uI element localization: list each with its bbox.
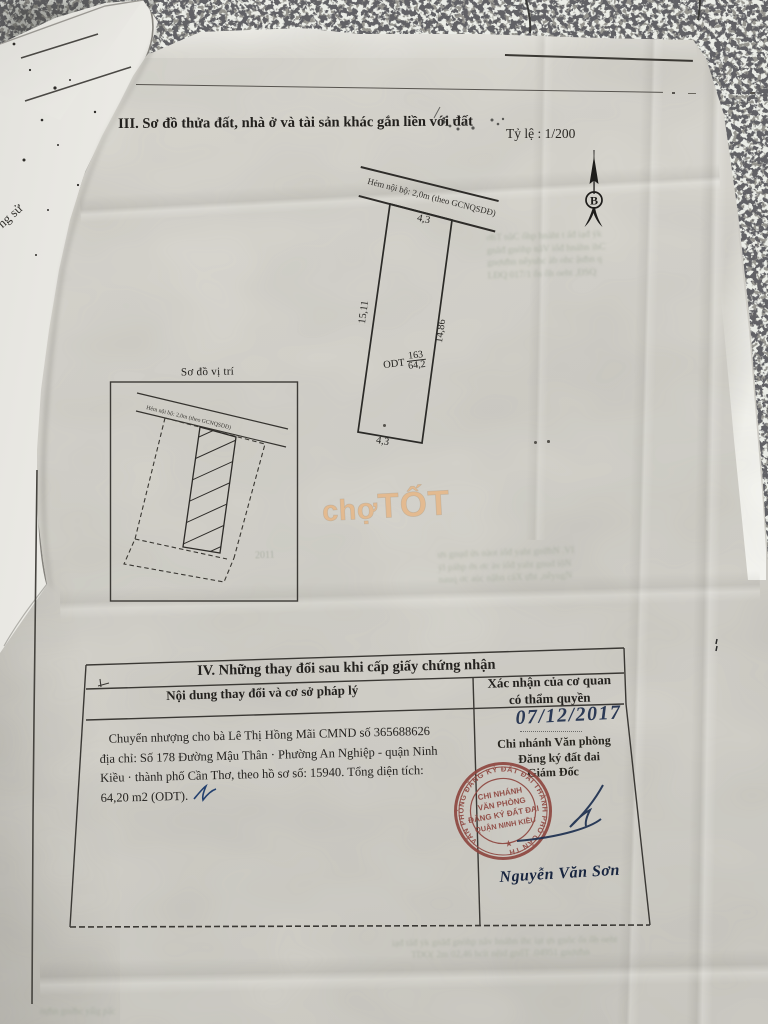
svg-text:★: ★ (504, 838, 514, 849)
svg-text:B: B (590, 194, 598, 208)
svg-text:Hẻm nội bộ: 2,0m (theo GCNQSDĐ: Hẻm nội bộ: 2,0m (theo GCNQSDĐ) (146, 404, 232, 431)
